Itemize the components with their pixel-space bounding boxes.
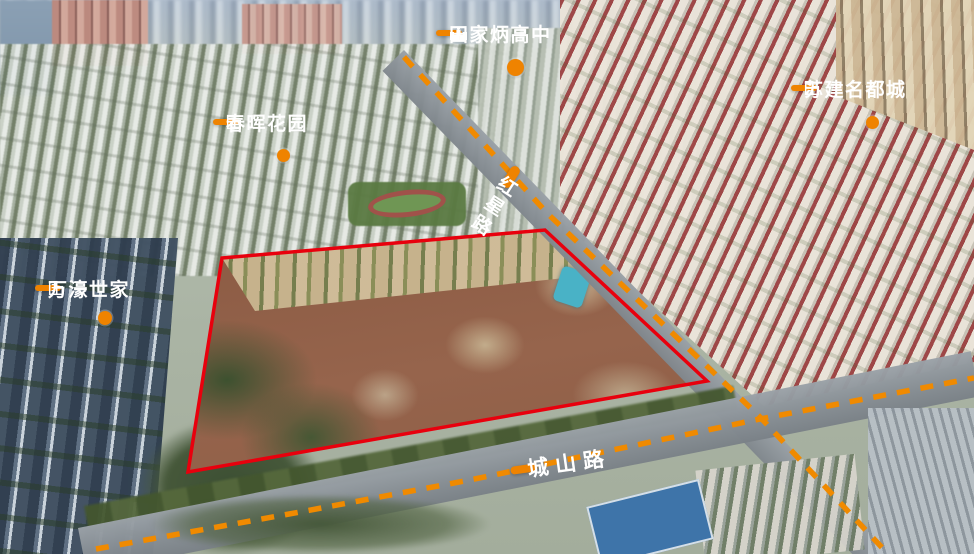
poi-label-text: 田家炳高中 <box>449 20 552 47</box>
poi-label-text: 苏建名都城 <box>804 75 907 102</box>
location-dot <box>277 149 290 162</box>
annotated-aerial-map: 田家炳高中 春晖花园 苏建名都城 万濠世家 红星路 城山路 <box>0 0 974 554</box>
poi-label-wanhao-shijia: 万濠世家 <box>35 285 61 291</box>
location-dot <box>98 311 112 325</box>
poi-label-sujian-mingducheng: 苏建名都城 <box>791 85 817 91</box>
poi-label-text: 万濠世家 <box>48 275 130 302</box>
parcel-boundary <box>188 230 707 472</box>
poi-label-tianjiabing-school: 田家炳高中 <box>436 30 462 36</box>
location-dot <box>866 116 879 129</box>
poi-label-text: 春晖花园 <box>226 109 308 136</box>
location-dot <box>507 59 524 76</box>
poi-label-chunhui-garden: 春晖花园 <box>213 119 239 125</box>
